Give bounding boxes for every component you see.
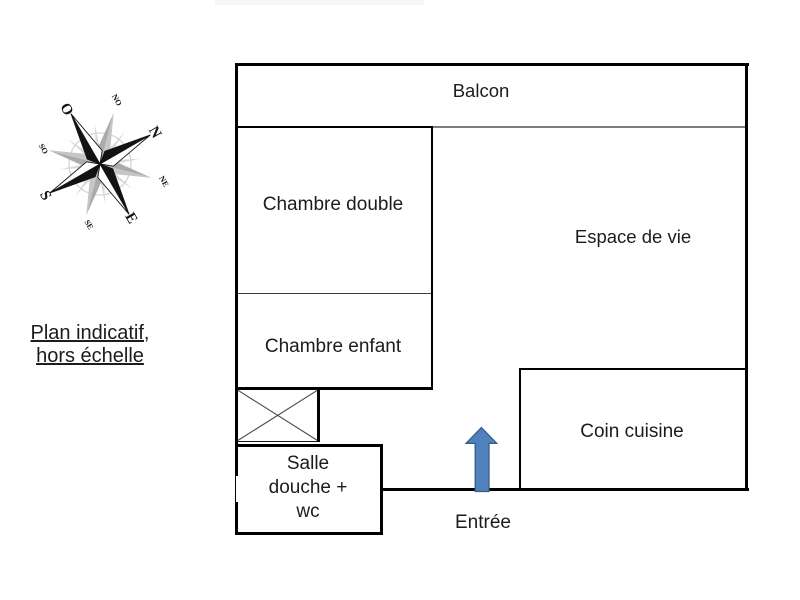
- svg-text:E: E: [121, 210, 140, 227]
- svg-text:NO: NO: [110, 93, 124, 108]
- svg-text:S: S: [36, 188, 54, 203]
- svg-text:NE: NE: [157, 174, 170, 188]
- svg-text:N: N: [145, 124, 164, 142]
- svg-text:SE: SE: [83, 218, 96, 231]
- svg-text:SO: SO: [37, 142, 50, 156]
